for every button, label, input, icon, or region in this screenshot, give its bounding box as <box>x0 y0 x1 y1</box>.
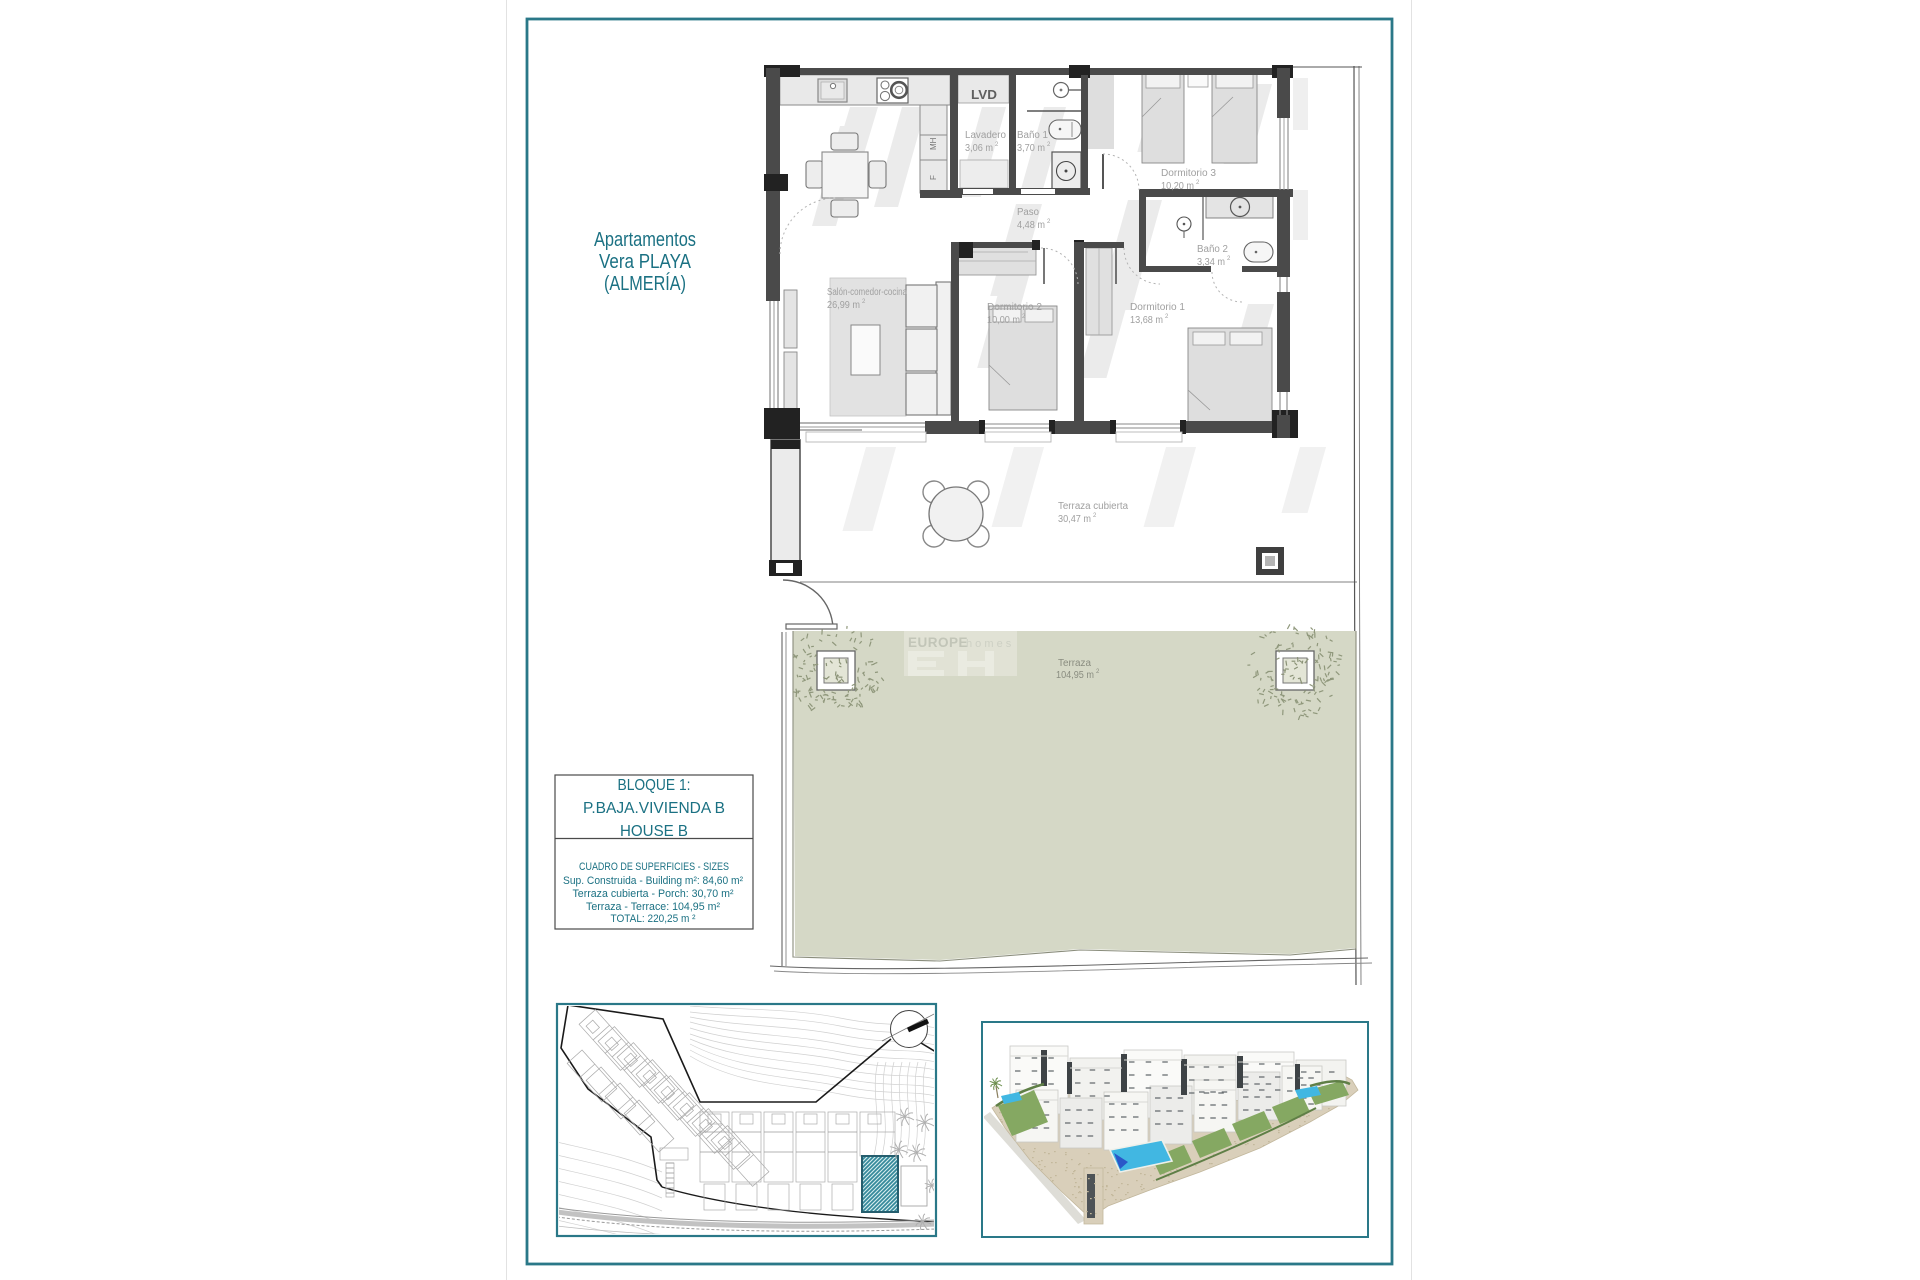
svg-text:13,68 m: 13,68 m <box>1130 315 1163 326</box>
svg-text:TOTAL: 220,25 m ²: TOTAL: 220,25 m ² <box>611 913 696 925</box>
svg-text:Terraza - Terrace: 104,95 m²: Terraza - Terrace: 104,95 m² <box>586 901 720 913</box>
svg-text:P.BAJA.VIVIENDA B: P.BAJA.VIVIENDA B <box>583 800 725 817</box>
svg-text:F: F <box>929 175 938 180</box>
svg-text:3,34 m: 3,34 m <box>1197 257 1225 268</box>
svg-text:Sup. Construida - Building m²: Sup. Construida - Building m²: 84,60 m² <box>563 875 743 887</box>
svg-text:Terraza cubierta - Porch: 30,: Terraza cubierta - Porch: 30,70 m² <box>573 888 734 900</box>
svg-text:EUROPE: EUROPE <box>908 635 968 650</box>
svg-text:Dormitorio 3: Dormitorio 3 <box>1161 168 1216 179</box>
svg-text:Terraza: Terraza <box>1058 658 1091 669</box>
svg-text:10,00 m: 10,00 m <box>987 315 1020 326</box>
svg-text:26,99 m: 26,99 m <box>827 300 860 311</box>
svg-text:Baño 1: Baño 1 <box>1017 130 1048 141</box>
svg-text:Apartamentos: Apartamentos <box>594 229 696 251</box>
svg-text:Paso: Paso <box>1017 207 1039 218</box>
svg-text:Dormitorio 2: Dormitorio 2 <box>987 302 1042 313</box>
svg-text:HOUSE B: HOUSE B <box>620 823 688 840</box>
svg-text:Terraza cubierta: Terraza cubierta <box>1058 501 1128 512</box>
svg-text:10,20 m: 10,20 m <box>1161 181 1194 192</box>
svg-text:(ALMERÍA): (ALMERÍA) <box>604 272 686 295</box>
svg-text:CUADRO DE SUPERFICIES - SIZES: CUADRO DE SUPERFICIES - SIZES <box>579 861 729 873</box>
svg-text:Lavadero: Lavadero <box>965 130 1006 141</box>
svg-text:h o m e s: h o m e s <box>966 638 1012 650</box>
svg-text:30,47 m: 30,47 m <box>1058 514 1091 525</box>
svg-text:3,06 m: 3,06 m <box>965 143 993 154</box>
svg-text:Salón-comedor-cocina: Salón-comedor-cocina <box>827 287 907 298</box>
svg-text:3,70 m: 3,70 m <box>1017 143 1045 154</box>
svg-text:BLOQUE 1:: BLOQUE 1: <box>618 777 691 794</box>
svg-text:Dormitorio 1: Dormitorio 1 <box>1130 302 1185 313</box>
svg-text:LVD: LVD <box>971 87 997 102</box>
svg-text:MH: MH <box>929 137 938 150</box>
svg-text:Vera PLAYA: Vera PLAYA <box>599 251 692 273</box>
svg-text:4,48 m: 4,48 m <box>1017 220 1045 231</box>
svg-text:Baño 2: Baño 2 <box>1197 244 1228 255</box>
svg-text:104,95 m: 104,95 m <box>1056 670 1094 681</box>
